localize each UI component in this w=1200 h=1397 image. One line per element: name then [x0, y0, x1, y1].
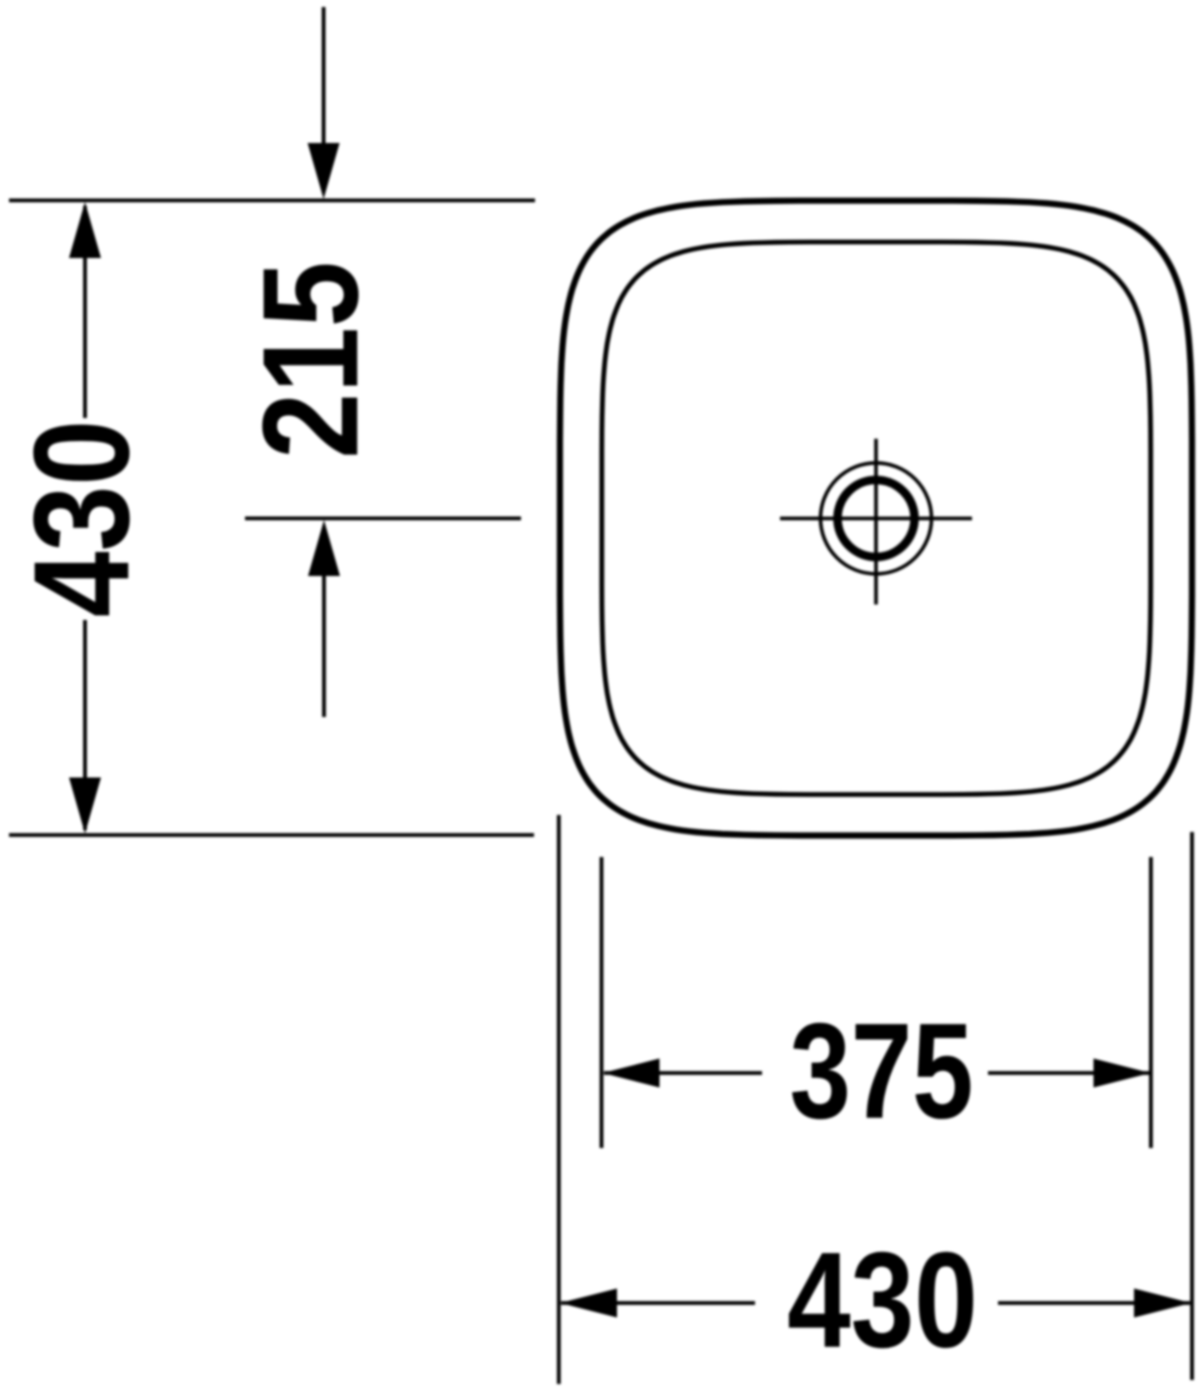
svg-text:215: 215: [236, 261, 388, 458]
svg-text:430: 430: [7, 420, 159, 617]
svg-text:430: 430: [787, 1223, 978, 1376]
svg-text:375: 375: [790, 996, 974, 1148]
